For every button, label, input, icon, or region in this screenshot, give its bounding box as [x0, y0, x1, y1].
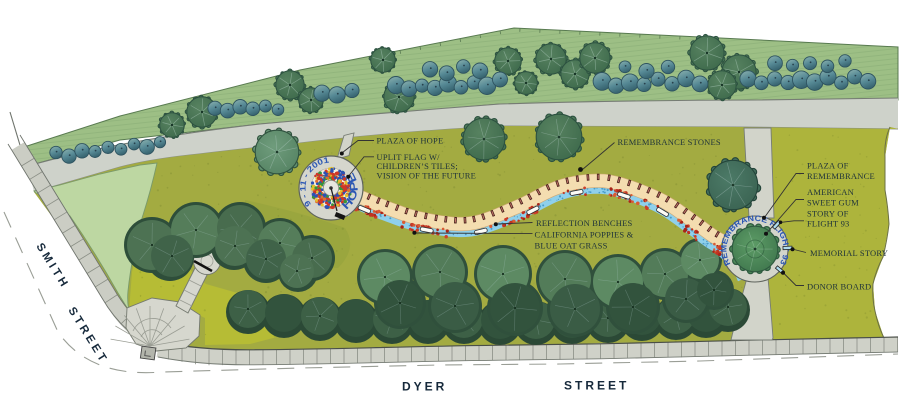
svg-text:STREET: STREET	[564, 379, 629, 393]
svg-text:DYER: DYER	[402, 380, 447, 394]
svg-text:VISION OF THE FUTURE: VISION OF THE FUTURE	[377, 171, 476, 181]
svg-text:FLIGHT 93: FLIGHT 93	[807, 219, 850, 229]
svg-text:REMEMBRANCE STONES: REMEMBRANCE STONES	[618, 137, 721, 147]
svg-text:SWEET GUM: SWEET GUM	[807, 198, 859, 208]
svg-text:DONOR BOARD: DONOR BOARD	[807, 281, 871, 291]
svg-text:AMERICAN: AMERICAN	[807, 187, 854, 197]
svg-text:STORY OF: STORY OF	[807, 208, 849, 218]
svg-text:REMEMBRANCE: REMEMBRANCE	[807, 171, 875, 181]
svg-text:BLUE OAT GRASS: BLUE OAT GRASS	[535, 241, 608, 251]
svg-text:CALIFORNIA POPPIES &: CALIFORNIA POPPIES &	[535, 229, 634, 239]
svg-text:PLAZA OF: PLAZA OF	[807, 160, 849, 170]
svg-text:REFLECTION BENCHES: REFLECTION BENCHES	[536, 218, 632, 228]
svg-text:MEMORIAL STORY: MEMORIAL STORY	[810, 248, 888, 258]
svg-text:PLAZA OF HOPE: PLAZA OF HOPE	[377, 136, 444, 146]
